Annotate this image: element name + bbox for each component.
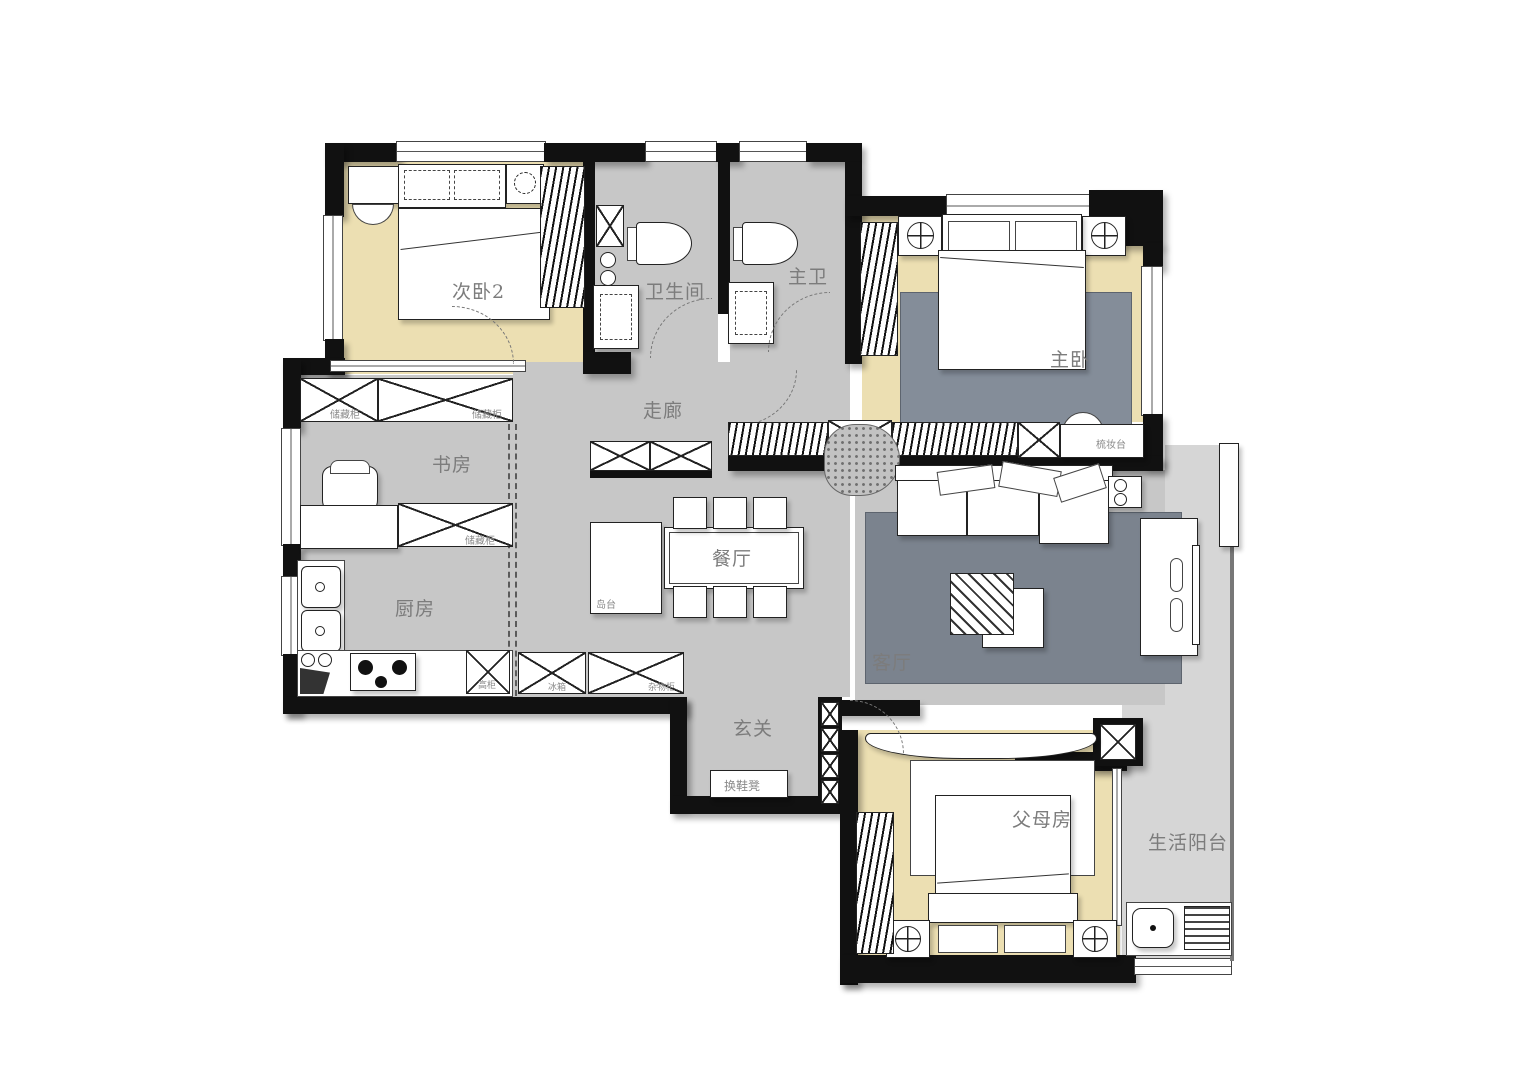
dresser-label: 梳妆台 [1096,436,1126,451]
bathroom-shelf-circle-1 [600,252,616,268]
tv-panel [1192,545,1200,645]
island-label: 岛台 [596,596,616,611]
side-table-circle-2 [1114,493,1127,506]
window-study-left [281,428,301,546]
master-bath-toilet [742,222,798,265]
study-chair-back [330,460,370,474]
study-desk [300,505,398,549]
wall-kitchen-bottom [283,697,687,714]
bedroom2-lamp [514,172,536,194]
washing-machine [1184,906,1230,950]
tall-cabinet-label: 高柜 [478,678,496,691]
balcony-label: 生活阳台 [1148,828,1228,855]
sundries-cabinet-label: 杂物柜 [648,680,675,693]
bedroom2-pillow-2 [454,170,500,200]
wall-top-4 [806,143,862,162]
dining-chair-b1 [673,586,707,618]
study-cabinet-top-1-label: 储藏柜 [330,406,360,421]
floor-plan: 梳妆台 储藏柜 储藏柜 储藏柜 高柜 冰箱 杂物柜 岛台 [0,0,1527,1080]
tv-handle-1 [1170,558,1183,592]
dining-chair-b2 [713,586,747,618]
master-bath-label: 主卫 [788,262,828,289]
bathroom-label: 卫生间 [645,277,705,304]
balcony-sink-drain [1150,925,1156,931]
kitchen-sink-1-drain [315,582,325,592]
wall-entry-left [670,697,687,808]
parents-room-label: 父母房 [1012,805,1072,832]
window-bathroom-top [645,141,717,162]
wall-top-3 [716,143,740,162]
coffee-table-hatched [950,573,1014,635]
study-cabinet-top-2-label: 储藏柜 [472,406,502,421]
wall-parents-bottom [840,955,1136,983]
window-master-bath-top [739,141,807,162]
closet-band-right [892,422,1018,456]
study-cabinet-side-label: 储藏柜 [465,532,495,547]
parents-wardrobe [856,812,894,954]
parents-pillow-1 [938,925,998,953]
master-bedroom-label: 主卧 [1050,345,1090,372]
tv-cabinet [1140,518,1198,656]
wall-master-top-1 [845,196,947,216]
closet-band-left [728,422,828,456]
entry-label: 玄关 [733,714,773,741]
bedroom2-cabinet [348,166,400,204]
stove-burner-1 [358,660,373,675]
entry-column-x2 [821,728,839,752]
fridge-label: 冰箱 [548,680,566,693]
window-bedroom2-top [396,141,546,162]
side-table-circle-1 [1114,479,1127,492]
bathroom-shaft-x [596,205,624,247]
master-lamp-left [907,222,934,249]
entry-column-x4 [821,780,839,804]
bedroom2-label: 次卧2 [452,277,505,304]
wall-top-2 [544,143,646,162]
window-parents-right [1112,768,1122,926]
corridor-cabinet-1 [590,441,650,471]
kitchen-label: 厨房 [395,594,435,621]
living-label: 客厅 [872,648,912,675]
corridor-label: 走廊 [643,396,683,423]
master-lamp-right [1091,222,1118,249]
stove-burner-2 [392,660,407,675]
master-pillow-right [1015,221,1077,251]
window-bedroom2-left [323,215,343,341]
parents-lamp-right [1082,926,1108,952]
kitchen-sink-2-drain [315,626,325,636]
bathroom-toilet [636,222,692,265]
window-balcony-bottom [1134,958,1232,975]
dining-chair-t2 [713,497,747,529]
window-master-right [1141,266,1163,416]
entry-column-x3 [821,754,839,778]
parents-corner-x [1100,724,1136,760]
bathroom-shelf-circle-2 [600,270,616,286]
wall-entry-bottom [670,796,840,814]
master-pillow-left [948,221,1010,251]
tv-handle-2 [1170,598,1183,632]
dining-chair-t1 [673,497,707,529]
master-wardrobe [860,222,898,356]
study-label: 书房 [432,450,472,477]
balcony-door-panel [1219,443,1239,547]
wall-left-mid1 [283,358,301,430]
bedroom2-pillow-1 [404,170,450,200]
dining-chair-b3 [753,586,787,618]
closet-band-xbox-2 [1018,422,1060,458]
entry-column-x1 [821,702,839,726]
bedroom2-wardrobe [540,166,585,308]
dining-label: 餐厅 [712,544,752,571]
kitchen-corner-knob-2 [318,653,332,667]
parents-pillow-2 [1004,925,1066,953]
parents-lamp-left [895,926,921,952]
kitchen-corner-knob-1 [301,653,315,667]
master-bath-basin [735,291,767,335]
corridor-cabinet-2 [650,441,712,471]
bathroom-basin [600,294,632,340]
parents-headboard [928,893,1078,923]
shoe-bench-label: 换鞋凳 [724,777,760,794]
wall-left-upper [325,143,344,217]
dining-chair-t3 [753,497,787,529]
wall-bath-corner [583,352,631,374]
study-cabinet-side [398,503,513,547]
stove-burner-3 [375,676,387,688]
